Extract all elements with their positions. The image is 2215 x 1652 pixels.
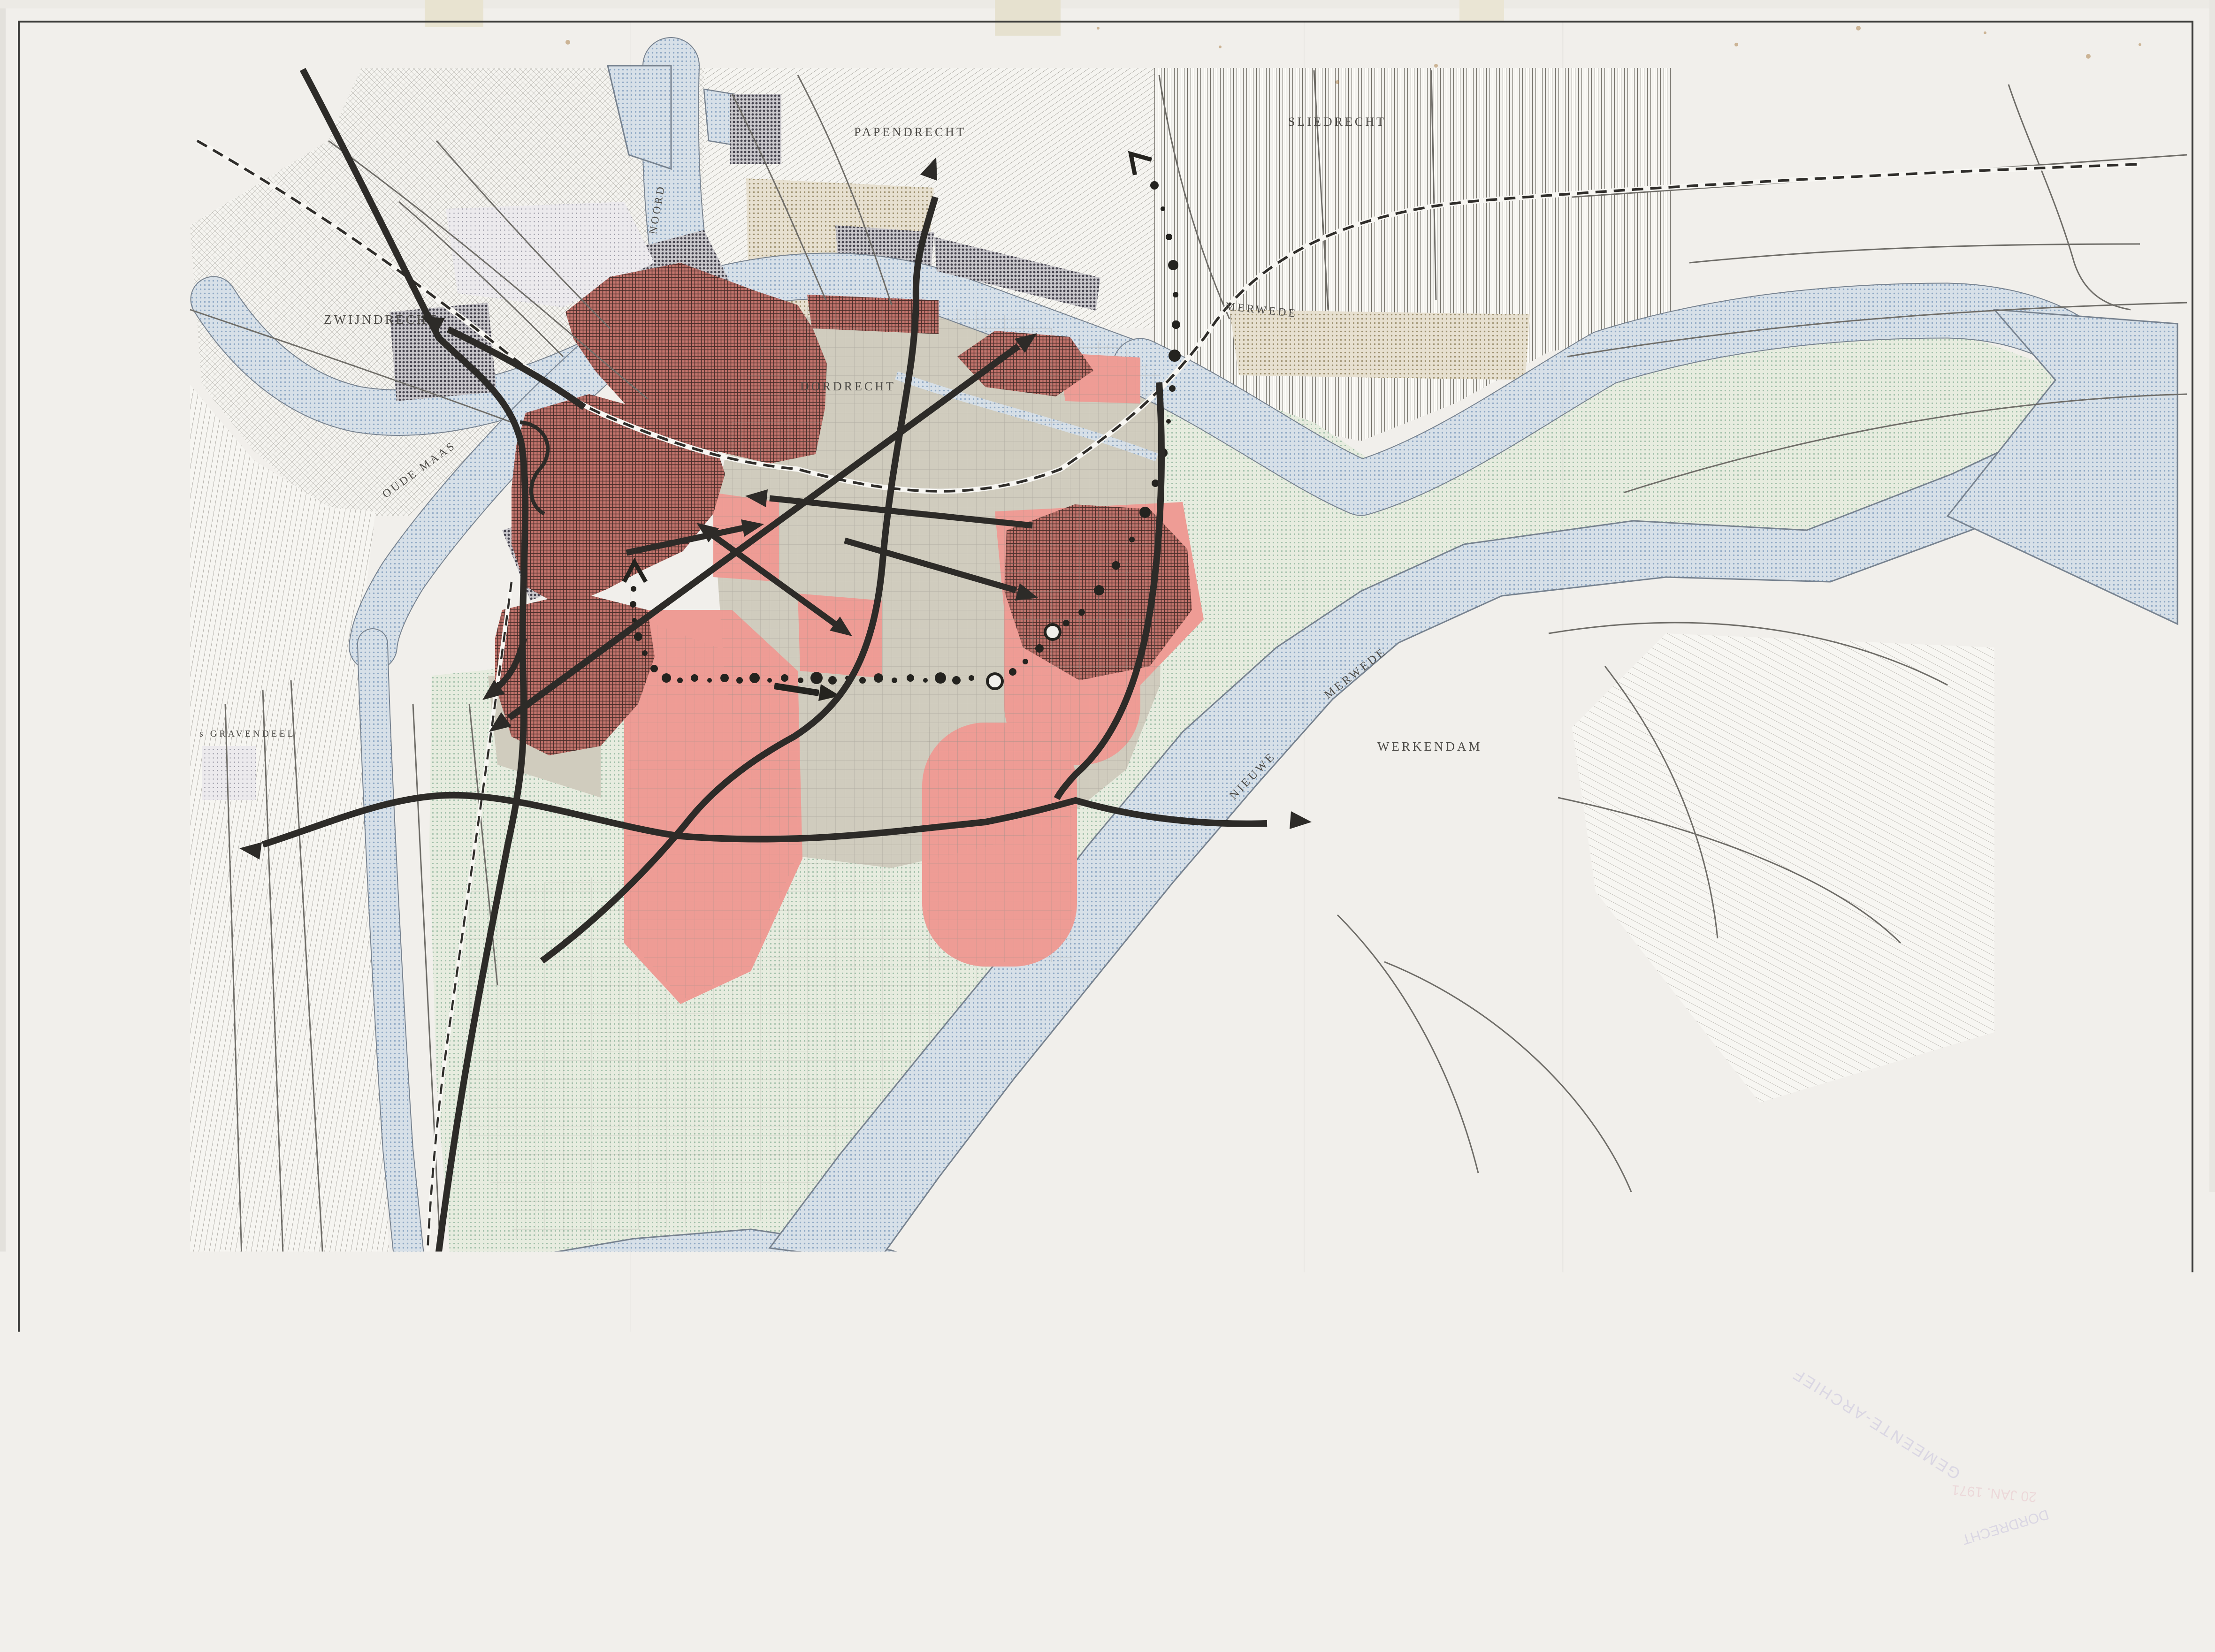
svg-text:DORDRECHT: DORDRECHT [800,380,896,393]
svg-text:SLIEDRECHT: SLIEDRECHT [1288,115,1386,129]
svg-text:s GRAVENDEEL: s GRAVENDEEL [199,729,296,739]
svg-text:AMER: AMER [828,1393,878,1408]
svg-text:ZWIJNDRECHT: ZWIJNDRECHT [324,312,438,327]
svg-text:4: 4 [2144,1507,2169,1556]
svg-text:II - 2: II - 2 [1601,1552,1656,1576]
svg-text:openbare werken en stadsontwik: openbare werken en stadsontwikkeling [1481,1526,2127,1550]
svg-text:afdeling stedebouw: afdeling stedebouw [1708,1552,1989,1576]
svg-text:WERKENDAM: WERKENDAM [1377,739,1482,754]
svg-text:PAPENDRECHT: PAPENDRECHT [854,125,966,139]
svg-text:gemeente dordrecht: gemeente dordrecht [1638,1486,1961,1511]
